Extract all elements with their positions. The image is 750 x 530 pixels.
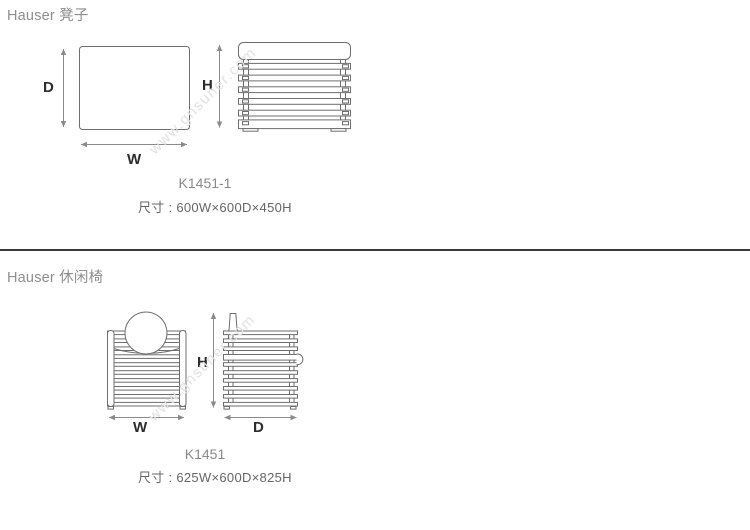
product-code-chair: K1451 (140, 446, 270, 462)
chair-backrest-post (229, 314, 237, 332)
stool-depth-label: D (43, 79, 54, 96)
product-code-stool: K1451-1 (140, 175, 270, 191)
stool-front-view (239, 43, 351, 132)
product-spec-page: Hauser 凳子 D W H (0, 0, 750, 530)
chair-width-label: W (133, 419, 148, 436)
stool-width-label: W (127, 151, 142, 168)
chair-side-handle (297, 354, 303, 365)
stool-figure: D W H (0, 0, 750, 250)
chair-front-view (108, 312, 187, 409)
stool-top-view (80, 47, 190, 130)
product-size-stool: 尺寸 : 600W×600D×450H (138, 197, 292, 216)
chair-depth-label: D (253, 419, 264, 436)
chair-side-view (224, 314, 303, 410)
product-size-chair: 尺寸 : 625W×600D×825H (138, 467, 292, 486)
chair-figure: W H (0, 250, 750, 530)
stool-height-label: H (202, 77, 213, 94)
chair-height-label: H (197, 354, 208, 371)
chair-pillow (125, 312, 167, 354)
